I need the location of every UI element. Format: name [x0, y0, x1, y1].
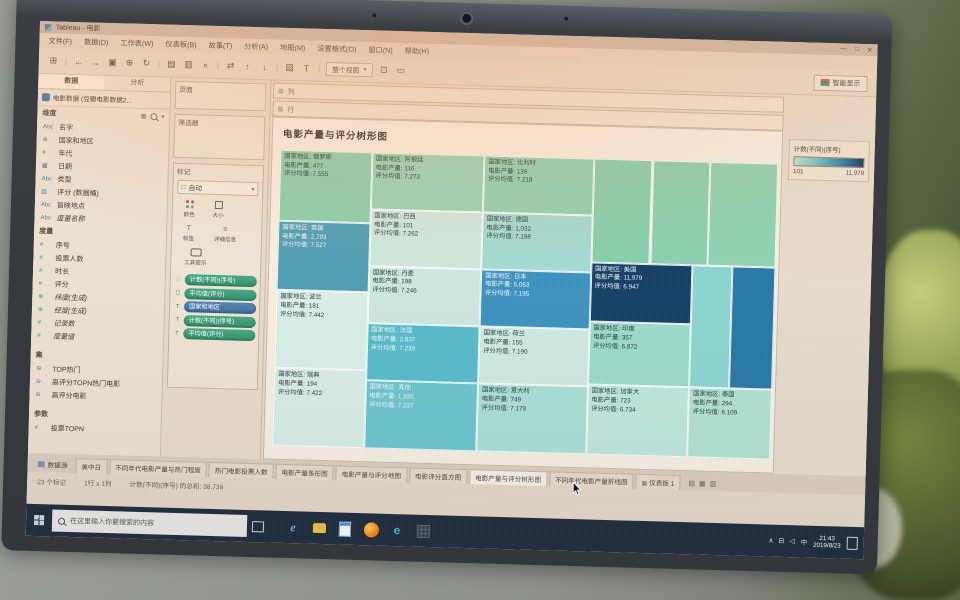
num-icon: #: [38, 320, 51, 326]
pill-row: ∷计数(不同)(序号): [174, 274, 257, 287]
legend-max: 11,979: [846, 170, 865, 178]
cell-rating: 评分均值: 7.422: [278, 388, 362, 399]
cell-rating: 评分均值: 7.262: [374, 230, 479, 242]
photo-scene: Tableau - 电影 —□✕ 文件(F)数据(D)工作表(W)仪表板(B)故…: [0, 0, 960, 540]
highlight-icon[interactable]: ▨: [284, 62, 295, 73]
system-tray: ∧⊟◁ 中 21:43 2019/8/23: [768, 533, 864, 551]
clear-sheet-icon[interactable]: ×: [200, 60, 211, 70]
sheet-tab-label: 仪表板 1: [649, 480, 674, 488]
num-icon: #: [39, 268, 52, 274]
menu-文件(F)[interactable]: 文件(F): [42, 36, 78, 47]
microphone-dot: [564, 17, 568, 21]
notification-center-icon[interactable]: [847, 536, 858, 549]
webcam: [460, 12, 473, 25]
legend-panel: 计数(不同)(序号) 101 11,979: [776, 95, 877, 476]
size-icon: [214, 201, 222, 209]
field-label: 度量值: [53, 331, 74, 342]
size-button[interactable]: 大小: [205, 199, 233, 222]
network-icon[interactable]: ⊟: [778, 537, 784, 545]
chevron-down-icon: ▾: [363, 66, 366, 73]
treemap-cell-其他[interactable]: 国家地区: 其他电影产量: 1,920评分均值: 7.237: [364, 380, 478, 451]
sheet-tab-label: 电影产量与评分树形图: [475, 475, 541, 484]
aggregate-summary: 计数(不同)(序号) 的总和: 38,738: [129, 479, 224, 510]
sheet-tab-电影产量与评分地图[interactable]: 电影产量与评分地图: [335, 465, 407, 482]
shelves-pane: 页面 筛选器 标记 □ 自动 ▾ 颜色大小T标签≡详细信息工具提示 ∷计数(不同: [161, 78, 272, 460]
mark-buttons: 颜色大小T标签≡详细信息工具提示: [174, 198, 259, 270]
cell-rating: 评分均值: 7.246: [372, 286, 477, 298]
treemap-cell-日本[interactable]: 国家地区: 日本电影产量: 5,053评分均值: 7.195: [480, 269, 591, 330]
chevron-down-icon[interactable]: ▾: [161, 113, 164, 120]
treemap-cell-阿根廷[interactable]: 国家地区: 阿根廷电影产量: 116评分均值: 7.273: [371, 152, 485, 212]
taskbar-app-firefox[interactable]: [361, 518, 382, 541]
menu-设置格式(O)[interactable]: 设置格式(O): [311, 43, 362, 54]
sort-ascending-icon[interactable]: ↑: [242, 61, 253, 71]
tooltip-bubble-icon: [190, 248, 201, 256]
fix-axes-icon[interactable]: ⊡: [378, 64, 389, 75]
treemap-chart: 国家地区: 俄罗斯电影产量: 477评分均值: 7.555国家地区: 英国电影产…: [272, 150, 778, 460]
label-pill-icon: T: [173, 317, 182, 323]
field-度量值[interactable]: #度量值: [31, 329, 163, 346]
show-me-label: 智能显示: [832, 78, 860, 89]
fit-value: 整个视图: [332, 64, 359, 75]
search-icon[interactable]: [150, 113, 157, 120]
main-area: 数据分析 电影数据 (豆瓣电影数据2... 维度 ▦ ▾ Abc名字⊕国家和地区: [28, 74, 876, 476]
start-button[interactable]: [26, 504, 53, 537]
venn-icon: ⊖: [36, 365, 49, 372]
field-label: 高评分TOPN热门电影: [52, 377, 121, 389]
pill-平均值(评分)[interactable]: 平均值(评分): [183, 328, 255, 341]
pages-shelf[interactable]: 页面: [175, 81, 267, 112]
sheet-tab-电影评分直方图[interactable]: 电影评分直方图: [409, 467, 468, 484]
cell-rating: 评分均值: 7.555: [284, 170, 368, 181]
refresh-icon[interactable]: ↻: [141, 58, 152, 69]
bins-icon: ▥: [41, 188, 54, 195]
task-view-button[interactable]: [247, 510, 270, 543]
taskbar-app-wps[interactable]: [335, 517, 356, 540]
treemap-cell-比利时[interactable]: 国家地区: 比利时电影产量: 139评分均值: 7.218: [483, 155, 594, 215]
toolbar-separator: |: [318, 64, 320, 73]
filters-shelf[interactable]: 筛选器: [173, 114, 265, 161]
worksheet-canvas: 电影产量与评分树形图 国家地区: 俄罗斯电影产量: 477评分均值: 7.555…: [263, 117, 783, 474]
show-me-icon: [821, 79, 830, 86]
chevron-down-icon: ▾: [251, 185, 254, 192]
menu-地图(M)[interactable]: 地图(M): [274, 42, 311, 53]
pill-计数(不同)(序号)[interactable]: 计数(不同)(序号): [184, 315, 256, 328]
toolbar-separator: |: [276, 63, 278, 72]
clock-date: 2019/8/23: [813, 542, 841, 550]
window-title: Tableau - 电影: [56, 22, 101, 33]
num-icon: #: [40, 242, 53, 248]
color-icon: [185, 200, 193, 208]
screen: Tableau - 电影 —□✕ 文件(F)数据(D)工作表(W)仪表板(B)故…: [26, 21, 878, 559]
search-icon: [58, 517, 65, 524]
color-legend[interactable]: 计数(不同)(序号) 101 11,979: [788, 139, 870, 182]
color-pill-icon: ∷: [174, 276, 183, 282]
treemap-cell[interactable]: [650, 160, 711, 265]
field-label: TOP热门: [52, 364, 81, 375]
num-icon: #: [39, 281, 52, 287]
menu-帮助(H)[interactable]: 帮助(H): [399, 46, 436, 57]
sheet-tab-label: 热门电影投票人数: [215, 468, 268, 476]
globe-icon: ⊕: [43, 136, 56, 143]
presentation-mode-icon[interactable]: ▭: [395, 65, 406, 76]
sort-descending-icon[interactable]: ↓: [259, 62, 270, 72]
tableau-logo-icon[interactable]: ⊞: [48, 55, 59, 66]
cell-rating: 评分均值: 7.273: [375, 173, 480, 185]
maximize-button[interactable]: □: [855, 46, 859, 54]
color-button[interactable]: 颜色: [176, 198, 204, 221]
data-source-name: 电影数据 (豆瓣电影数据2...: [53, 92, 132, 104]
pill-国家和地区[interactable]: 国家和地区: [184, 301, 256, 314]
data-pane-tab-数据[interactable]: 数据: [38, 74, 104, 90]
cell-rating: 评分均值: 7.179: [481, 404, 583, 416]
detail-button[interactable]: ≡详细信息: [204, 223, 247, 246]
treemap-cell[interactable]: [729, 266, 775, 390]
laptop: Tableau - 电影 —□✕ 文件(F)数据(D)工作表(W)仪表板(B)故…: [1, 0, 892, 575]
cell-rating: 评分均值: 7.239: [371, 344, 476, 356]
toolbar-separator: |: [158, 59, 160, 68]
canvas-column: ▦ 列 ▦ 行 电影产量与评分树形图 国家地区: 俄罗斯电影产量: 477评分均…: [261, 80, 786, 473]
sheet-tab-label: 不同年代电影产量折线图: [555, 478, 628, 487]
menu-故事(T)[interactable]: 故事(T): [202, 40, 238, 51]
sheet-tab-不同年代电影产量与热门程度[interactable]: 不同年代电影产量与热门程度: [109, 459, 207, 477]
fit-dropdown[interactable]: 整个视图 ▾: [326, 62, 373, 77]
parameters-list: #投票TOPN: [28, 421, 160, 438]
treemap-cell[interactable]: [591, 159, 653, 264]
abc-icon: Abc: [43, 124, 56, 130]
new-sheet-buttons: ▤▦▥: [688, 479, 716, 488]
field-label: 名字: [59, 122, 73, 132]
menu-数据(D)[interactable]: 数据(D): [78, 37, 115, 48]
sheet-title: 电影产量与评分树形图: [283, 126, 388, 143]
cell-rating: 评分均值: 7.190: [483, 347, 585, 359]
field-label: 年代: [58, 148, 72, 158]
taskbar-search-input[interactable]: 在这里输入你要搜索的内容: [52, 510, 248, 537]
cell-rating: 评分均值: 6.109: [693, 408, 768, 419]
mark-button-label: 颜色: [183, 210, 194, 218]
grid-size: 1行 x 1列: [83, 477, 111, 506]
marks-card: 标记 □ 自动 ▾ 颜色大小T标签≡详细信息工具提示 ∷计数(不同)(序号)◻平…: [167, 163, 264, 390]
new-dashboard-button[interactable]: ▦: [699, 480, 706, 488]
treemap-cell-丹麦[interactable]: 国家地区: 丹麦电影产量: 198评分均值: 7.246: [367, 266, 481, 327]
legend-min: 101: [793, 168, 804, 175]
field-label: 日期: [58, 161, 72, 171]
sheet-tab-美中日[interactable]: 美中日: [75, 458, 107, 474]
tableau-app-icon: [45, 24, 52, 31]
cell-rating: 评分均值: 7.527: [282, 241, 366, 252]
abc-icon: Abc: [42, 176, 55, 182]
num-icon: #: [39, 255, 52, 261]
taskbar-app-ie[interactable]: e: [283, 516, 304, 539]
globe-icon: ⊕: [38, 293, 51, 300]
sheet-tab-label: 不同年代电影产量与热门程度: [115, 465, 201, 474]
treemap-cell-意大利[interactable]: 国家地区: 意大利电影产量: 749评分均值: 7.179: [476, 384, 587, 455]
sheet-tab-不同年代电影产量折线图[interactable]: 不同年代电影产量折线图: [549, 471, 634, 488]
new-story-button[interactable]: ▥: [710, 480, 717, 488]
tooltip-button[interactable]: 工具提示: [174, 246, 217, 269]
field-label: 类型: [57, 174, 71, 184]
mark-type-icon: □: [181, 184, 185, 191]
add-data-icon[interactable]: ⊕: [124, 57, 135, 68]
sets-list: ⊖TOP热门⊖高评分TOPN热门电影⊖高评分电影: [29, 362, 162, 405]
sheet-tab-仪表板 1[interactable]: ▦仪表板 1: [635, 474, 680, 490]
cell-rating: 评分均值: 7.218: [488, 176, 590, 188]
globe-icon: ⊕: [38, 306, 51, 313]
treemap-cell-泰国[interactable]: 国家地区: 泰国电影产量: 294评分均值: 6.109: [687, 387, 772, 459]
field-高评分电影[interactable]: ⊖高评分电影: [29, 388, 161, 405]
dimensions-list: Abc名字⊕国家和地区#年代▦日期Abc类型▥评分 (数据桶)Abc首映地点Ab…: [34, 120, 169, 228]
num-icon: #: [37, 333, 50, 339]
menu-窗口(N)[interactable]: 窗口(N): [362, 45, 399, 56]
treemap-cell-巴西[interactable]: 国家地区: 巴西电影产量: 101评分均值: 7.262: [369, 209, 483, 269]
marks-pills: ∷计数(不同)(序号)◻平均值(评分)T国家和地区T计数(不同)(序号)T平均值…: [172, 274, 257, 341]
field-label: 首映地点: [57, 200, 85, 211]
cell-rating: 评分均值: 7.198: [486, 233, 588, 245]
back-icon[interactable]: ←: [73, 56, 84, 66]
num-icon: #: [42, 150, 55, 156]
menu-工作表(W)[interactable]: 工作表(W): [114, 38, 159, 49]
treemap-cell[interactable]: [689, 265, 732, 389]
field-label: 经度(生成): [54, 305, 87, 316]
abc-icon: Abc: [41, 202, 54, 208]
cell-rating: 评分均值: 7.195: [485, 290, 587, 302]
venn-icon: ⊖: [35, 391, 48, 398]
dashboard-icon: ▦: [641, 481, 647, 487]
treemap-cell-瑞典[interactable]: 国家地区: 瑞典电影产量: 194评分均值: 7.422: [272, 368, 366, 448]
data-pane-tab-分析[interactable]: 分析: [104, 76, 170, 92]
pill-计数(不同)(序号)[interactable]: 计数(不同)(序号): [185, 274, 257, 287]
sheet-tab-电影产量条形图[interactable]: 电影产量条形图: [275, 464, 334, 481]
cell-rating: 评分均值: 6.872: [593, 342, 687, 353]
sheet-tab-电影产量与评分树形图[interactable]: 电影产量与评分树形图: [469, 469, 547, 486]
database-icon: [42, 93, 50, 101]
tooltip-icon: [190, 248, 201, 256]
save-icon[interactable]: ▣: [107, 57, 118, 68]
field-label: 时长: [55, 266, 69, 276]
treemap-cell-俄罗斯[interactable]: 国家地区: 俄罗斯电影产量: 477评分均值: 7.555: [279, 150, 373, 224]
clock[interactable]: 21:43 2019/8/23: [813, 534, 841, 550]
venn-icon: ⊖: [36, 378, 49, 385]
new-worksheet-button[interactable]: ▤: [688, 479, 695, 487]
num-icon: #: [35, 425, 48, 431]
field-label: 高评分电影: [51, 390, 86, 401]
treemap-cell-德国[interactable]: 国家地区: 德国电影产量: 1,032评分均值: 7.198: [481, 212, 592, 272]
abc-icon: Abc: [40, 215, 53, 221]
pill-row: ◻平均值(评分): [173, 287, 256, 300]
toolbar-separator: |: [65, 57, 67, 66]
data-source-tab[interactable]: 数据源: [31, 457, 73, 473]
forward-icon[interactable]: →: [90, 57, 101, 67]
legend-gradient: [793, 156, 864, 168]
treemap-cell[interactable]: [708, 162, 779, 267]
volume-icon[interactable]: ◁: [789, 537, 795, 545]
label-pill-icon: T: [172, 330, 181, 336]
view-list-icon[interactable]: ▦: [141, 112, 147, 119]
label-pill-icon: T: [173, 303, 182, 309]
grid-icon: ▦: [278, 105, 284, 112]
treemap-cell-法国[interactable]: 国家地区: 法国电影产量: 2,837评分均值: 7.239: [366, 324, 480, 384]
field-投票TOPN[interactable]: #投票TOPN: [28, 421, 160, 438]
cell-rating: 评分均值: 7.442: [280, 311, 364, 322]
mark-type-dropdown[interactable]: □ 自动 ▾: [177, 180, 258, 196]
field-label: 投票TOPN: [51, 423, 85, 434]
cell-rating: 评分均值: 7.237: [369, 401, 474, 413]
field-label: 纬度(生成): [54, 292, 87, 303]
marks-count: 23 个标记: [37, 476, 67, 505]
sheet-tab-label: 电影产量与评分地图: [342, 472, 402, 481]
field-label: 序号: [56, 240, 70, 250]
show-me-button[interactable]: 智能显示: [813, 74, 867, 92]
mark-button-label: 详细信息: [214, 235, 237, 244]
toolbar-icons-right: ⊡▭: [378, 64, 406, 76]
pill-平均值(评分)[interactable]: 平均值(评分): [184, 288, 256, 301]
size-pill-icon: ◻: [173, 290, 182, 296]
mark-button-label: 工具提示: [184, 258, 207, 267]
mark-button-label: 标签: [183, 234, 194, 242]
legend-title: 计数(不同)(序号): [794, 144, 865, 155]
ime-language[interactable]: 中: [801, 536, 808, 546]
datasource-icon: [38, 461, 45, 467]
cell-rating: 评分均值: 6.947: [594, 283, 688, 294]
pill-row: T平均值(评分): [172, 328, 255, 341]
treemap-cell-波兰[interactable]: 国家地区: 波兰电影产量: 181评分均值: 7.442: [274, 290, 368, 370]
hidden-icons-icon[interactable]: ∧: [768, 537, 773, 545]
toolbar-icons: ⊞|←→▣⊕↻|▤▥×|⇄↑↓|▨T|: [48, 55, 321, 74]
search-placeholder: 在这里输入你要搜索的内容: [70, 516, 154, 528]
label-button[interactable]: T标签: [175, 222, 203, 245]
microphone-dot: [372, 13, 376, 17]
pill-row: T计数(不同)(序号): [173, 314, 256, 327]
swap-axes-icon[interactable]: ⇄: [225, 60, 236, 71]
sheet-tab-label: 电影评分直方图: [415, 474, 461, 482]
cell-rating: 评分均值: 6.734: [591, 405, 685, 416]
taskbar-app-edge[interactable]: e: [387, 519, 408, 542]
menu-仪表板(B)[interactable]: 仪表板(B): [159, 39, 202, 50]
show-labels-icon[interactable]: T: [301, 63, 312, 73]
field-label: 度量名称: [56, 213, 84, 224]
field-label: 国家和地区: [59, 135, 94, 146]
toolbar-separator: |: [217, 61, 219, 70]
field-label: 评分: [55, 279, 69, 289]
calendar-icon: ▦: [42, 162, 55, 169]
field-label: 投票人数: [55, 253, 83, 264]
treemap-cell-加拿大[interactable]: 国家地区: 加拿大电影产量: 723评分均值: 6.734: [586, 385, 689, 458]
mouse-cursor: [572, 482, 582, 496]
sheet-tab-热门电影投票人数[interactable]: 热门电影投票人数: [209, 462, 274, 479]
detail-icon: ≡: [223, 225, 227, 233]
sheet-tab-label: 电影产量条形图: [281, 470, 327, 478]
window-controls: —□✕: [841, 45, 873, 54]
minimize-button[interactable]: —: [841, 45, 848, 53]
sheet-tab-label: 美中日: [81, 464, 101, 472]
measures-list: #序号#投票人数#时长#评分⊕纬度(生成)⊕经度(生成)#记录数#度量值: [31, 238, 166, 346]
taskbar-app-explorer[interactable]: [309, 517, 330, 540]
color-dots-icon: [185, 200, 188, 203]
data-pane: 数据分析 电影数据 (豆瓣电影数据2... 维度 ▦ ▾ Abc名字⊕国家和地区: [28, 74, 172, 457]
menu-分析(A)[interactable]: 分析(A): [238, 41, 274, 52]
taskbar-apps: ee: [283, 516, 434, 542]
close-button[interactable]: ✕: [867, 46, 873, 54]
field-label: 评分 (数据桶): [57, 187, 99, 198]
treemap-cell-美国[interactable]: 国家地区: 美国电影产量: 11,979评分均值: 6.947: [590, 262, 693, 325]
taskbar-app-grid[interactable]: [413, 520, 434, 543]
new-worksheet-icon[interactable]: ▤: [166, 59, 177, 70]
duplicate-icon[interactable]: ▥: [183, 59, 194, 70]
mark-button-label: 大小: [212, 211, 223, 219]
treemap-cell-英国[interactable]: 国家地区: 英国电影产量: 2,793评分均值: 7.527: [277, 221, 371, 293]
grid-icon: ▦: [278, 87, 284, 94]
label-icon: T: [187, 224, 192, 232]
treemap-cell-荷兰[interactable]: 国家地区: 荷兰电影产量: 155评分均值: 7.190: [478, 327, 589, 387]
size-square-icon: [214, 201, 222, 209]
field-label: 记录数: [53, 318, 74, 329]
windows-logo-icon: [34, 515, 44, 525]
pill-row: T国家和地区: [173, 301, 256, 314]
treemap-cell-印度[interactable]: 国家地区: 印度电影产量: 357评分均值: 6.872: [588, 322, 691, 388]
